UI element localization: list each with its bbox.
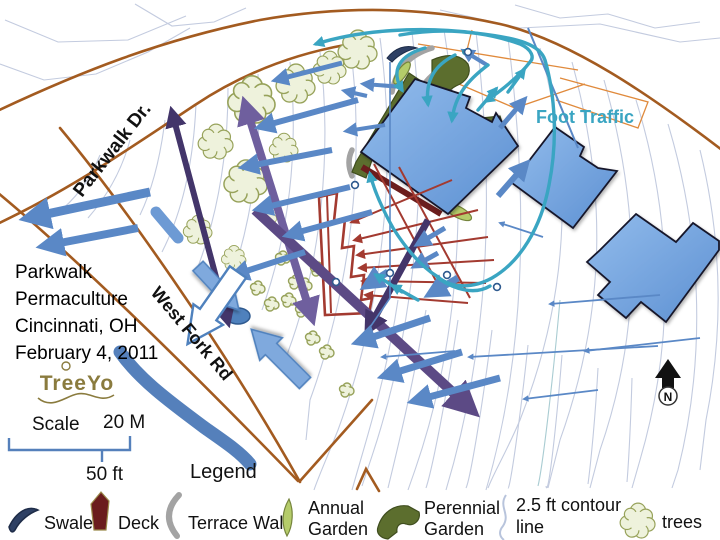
road-label-parkwalk: Parkwalk Dr. <box>69 99 155 201</box>
driveway-segment <box>156 212 178 238</box>
title-line-3: Cincinnati, OH <box>15 316 138 337</box>
scale-bar: Scale 20 M 50 ft <box>9 412 145 485</box>
legend-perennial-label-2: Garden <box>424 519 484 539</box>
scale-label: Scale <box>32 414 80 435</box>
deck-icon <box>91 492 109 530</box>
treeyo-logo: TreeYo <box>38 362 114 403</box>
legend-contour-label-2: line <box>516 517 544 537</box>
title-line-1: Parkwalk <box>15 262 93 283</box>
trees-icon <box>620 503 655 538</box>
site-plan-map: Parkwalk Dr. West Fork Rd Foot Traffic N… <box>0 0 720 540</box>
title-line-4: February 4, 2011 <box>15 343 158 364</box>
title-line-2: Permaculture <box>15 289 128 310</box>
scale-metric-label: 20 M <box>103 412 145 433</box>
north-arrow: N <box>655 359 681 405</box>
legend-annual-label-2: Garden <box>308 519 368 539</box>
legend-deck-label: Deck <box>118 513 160 533</box>
legend-annual-label-1: Annual <box>308 498 364 518</box>
swale-icon <box>9 508 38 531</box>
legend-trees-label: trees <box>662 512 702 532</box>
map-canvas: Parkwalk Dr. West Fork Rd Foot Traffic N… <box>0 0 720 540</box>
legend-perennial-label-1: Perennial <box>424 498 500 518</box>
neighbor-house-southeast <box>587 214 719 322</box>
neighbor-house-east <box>512 127 617 228</box>
contour-line-icon <box>500 495 506 540</box>
logo-text: TreeYo <box>40 372 114 395</box>
annual-garden-icon <box>283 499 292 536</box>
legend-swale-label: Swale <box>44 513 93 533</box>
foot-traffic-label: Foot Traffic <box>536 107 634 127</box>
perennial-garden-icon <box>377 506 419 539</box>
north-label: N <box>664 390 673 404</box>
legend-terrace-label: Terrace Wall <box>188 513 287 533</box>
legend-title: Legend <box>190 461 257 483</box>
terrace-wall-icon <box>169 495 179 536</box>
legend-contour-label-1: 2.5 ft contour <box>516 495 621 515</box>
north-arrow-icon <box>655 359 681 388</box>
title-block: Parkwalk Permaculture Cincinnati, OH Feb… <box>15 262 158 364</box>
scale-imperial-label: 50 ft <box>86 464 124 485</box>
legend-row: Swale Deck Terrace Wall Annual Garden Pe… <box>9 492 702 540</box>
